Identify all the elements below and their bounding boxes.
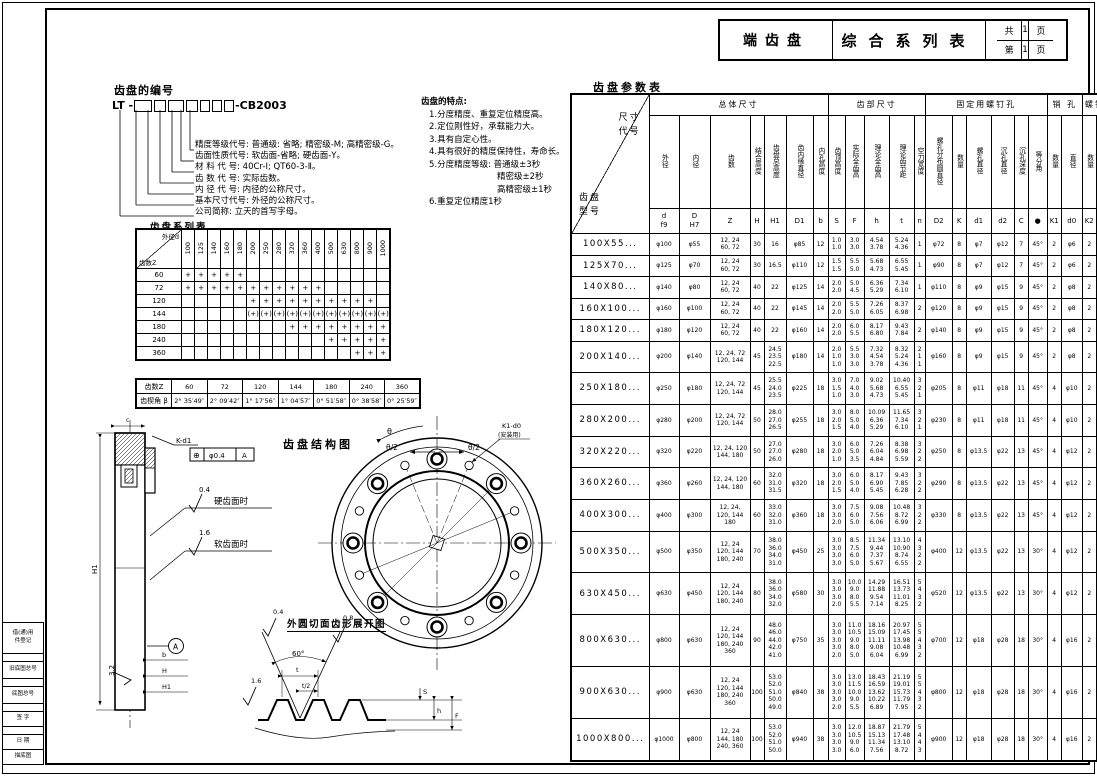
series-mark: + (325, 295, 338, 308)
param-value: φ120 (925, 298, 952, 320)
param-value: φ18 (966, 718, 991, 761)
param-value: φ330 (925, 500, 952, 532)
param-value: 48.0 46.0 44.0 42.0 41.0 (764, 615, 786, 667)
cross-section-view: H1 c K-d1 ⊕ φ0.4 A 0.4 硬齿面时 1.6 软齿 (91, 417, 272, 728)
series-col-header: 900 (364, 229, 377, 269)
param-value: 7.26 6.04 4.84 (864, 436, 889, 468)
angle-z-value: 144 (278, 379, 314, 394)
param-value: 2.0 2.0 (828, 298, 845, 320)
param-value: φ16 (1061, 718, 1082, 761)
param-value: 2.0 2.0 (828, 320, 845, 342)
param-symbol: d1 (966, 209, 991, 234)
series-col-value: 100 (184, 242, 192, 254)
param-value: 8 (952, 341, 966, 373)
param-value: 12, 24 60, 72 (710, 255, 750, 277)
k-d1-label: K-d1 (176, 437, 191, 445)
series-col-value: 360 (301, 242, 309, 254)
param-value: φ300 (679, 500, 710, 532)
series-z-label: 360 (136, 347, 182, 361)
margin-field-strip: 借(通)用 件登记旧底图总号底图总号签 字日 期描底图 (2, 622, 44, 765)
param-value: 13 (1014, 573, 1028, 615)
param-value: 30° (1028, 667, 1047, 719)
param-value: 1 (914, 255, 925, 277)
param-value: 12 (952, 573, 966, 615)
param-value: 21.79 17.48 13.10 8.72 (889, 718, 914, 761)
title-block: 端齿盘 综合系列表 共 1 页 第 1 页 (718, 19, 1068, 61)
param-data-row: 630X450...φ630φ45012, 24 120, 144 180, 2… (571, 573, 1097, 615)
param-value: 2 (1082, 255, 1096, 277)
margin-field: 描底图 (2, 750, 44, 765)
series-col-value: 180 (236, 242, 244, 254)
series-col-value: 1000 (379, 240, 387, 257)
param-value: 3.0 2.0 1.5 (828, 405, 845, 437)
param-value: 4 (1047, 718, 1061, 761)
param-symbol: H (750, 209, 764, 234)
margin-field (2, 704, 44, 712)
dim-b: b (162, 651, 166, 659)
series-mark: + (351, 321, 364, 334)
series-mark: + (286, 295, 299, 308)
param-value: φ145 (786, 298, 813, 320)
param-col-label: 空刀宽度 (914, 116, 925, 209)
theta-half-right: θ/2 (468, 443, 480, 452)
series-mark: + (312, 282, 325, 295)
param-value: φ12 (1061, 436, 1082, 468)
param-value: 30° (1028, 531, 1047, 573)
param-col-label: 齿盘总高度 (764, 116, 786, 209)
param-value: 1.5 1.5 (828, 255, 845, 277)
param-col-label: 螺孔分布圆直径 (925, 116, 952, 209)
angle-z-value: 72 (207, 379, 243, 394)
param-value: φ90 (925, 255, 952, 277)
param-value: φ140 (649, 277, 679, 299)
series-mark: + (286, 282, 299, 295)
param-value: φ900 (649, 667, 679, 719)
param-value: φ125 (649, 255, 679, 277)
param-value: φ900 (925, 718, 952, 761)
param-symbol: d f9 (649, 209, 679, 234)
param-model: 125X70... (571, 255, 649, 277)
roughness-04-dev: 0.4 (273, 608, 283, 616)
param-model: 400X300... (571, 500, 649, 532)
param-value: φ55 (679, 234, 710, 256)
series-mark: + (377, 321, 390, 334)
series-mark: (+) (247, 308, 260, 321)
param-value: 30° (1028, 615, 1047, 667)
param-value: 5.0 4.5 (845, 277, 864, 299)
param-value: φ750 (786, 615, 813, 667)
param-value: φ13.5 (966, 468, 991, 500)
series-mark: (+) (273, 308, 286, 321)
series-col-value: 800 (353, 242, 361, 254)
param-group-header: 总体尺寸 (649, 94, 828, 116)
param-value: 30° (1028, 718, 1047, 761)
param-value: φ80 (679, 277, 710, 299)
param-value: φ16 (1061, 667, 1082, 719)
param-value: 8.5 7.5 6.0 5.0 (845, 531, 864, 573)
param-value: φ220 (679, 436, 710, 468)
param-col-label: 沉孔直径 (991, 116, 1014, 209)
param-value: 3.0 2.0 1.0 (828, 436, 845, 468)
param-value: φ22 (991, 468, 1014, 500)
param-value: 16.51 13.73 11.01 8.25 (889, 573, 914, 615)
param-value: 2 (1082, 320, 1096, 342)
param-value: φ28 (991, 667, 1014, 719)
param-value: 100 (750, 667, 764, 719)
series-mark (234, 334, 247, 347)
series-mark (221, 334, 234, 347)
theta-label: θ (387, 427, 392, 436)
structure-diagrams: H1 c K-d1 ⊕ φ0.4 A 0.4 硬齿面时 1.6 软齿 (90, 408, 582, 756)
param-value: 4 (1047, 436, 1061, 468)
param-value: 6.0 5.0 3.5 (845, 436, 864, 468)
series-mark (286, 334, 299, 347)
param-value: 3 2 2 (914, 436, 925, 468)
param-value: 18 (813, 373, 828, 405)
param-value: 18.43 16.59 13.62 10.22 6.89 (864, 667, 889, 719)
param-value: 9.43 7.85 6.28 (889, 468, 914, 500)
series-col-header: 320 (286, 229, 299, 269)
series-mark (221, 347, 234, 361)
param-symbol-row: d f9D H7ZHH1D1bSFhtnD2Kd1d2C●K1d0K2d3 (571, 209, 1097, 234)
param-data-row: 1000X800...φ1000φ80012, 24 144, 180 240,… (571, 718, 1097, 761)
param-label-row: 外径内径齿数结合高度齿盘总高度齿内缘直径内孔高度齿顶高度实际全齿高理论全齿高理论… (571, 116, 1097, 209)
series-mark (234, 321, 247, 334)
series-row: 72+++++++++++ (136, 282, 390, 295)
param-corner-bottom: 齿盘 型号 (579, 191, 601, 219)
param-value: φ7 (966, 234, 991, 256)
param-value: 2 (1082, 234, 1096, 256)
param-value: φ250 (649, 373, 679, 405)
param-value: 4 (1047, 500, 1061, 532)
series-col-header: 630 (338, 229, 351, 269)
param-value: 14 (813, 298, 828, 320)
param-value: 8.17 6.80 (864, 320, 889, 342)
param-value: φ6 (1061, 234, 1082, 256)
series-mark: + (273, 295, 286, 308)
param-value: φ160 (786, 320, 813, 342)
param-data-row: 900X630...φ900φ63012, 24 120, 144 180, 2… (571, 667, 1097, 719)
angle-row: 齿数Z6072120144180240360 (136, 379, 420, 394)
param-value: 4 (1047, 667, 1061, 719)
param-value: 4 (1047, 468, 1061, 500)
hard-face-label: 硬齿面时 (214, 496, 249, 507)
param-value: 45° (1028, 436, 1047, 468)
param-value: φ160 (925, 341, 952, 373)
param-value: 12, 24, 120, 144 180 (710, 500, 750, 532)
param-model: 160X100... (571, 298, 649, 320)
param-value: 12, 24 60, 72 (710, 277, 750, 299)
series-corner: 外径d齿数Z (136, 229, 182, 269)
param-value: φ8 (1061, 320, 1082, 342)
param-data-row: 320X220...φ320φ22012, 24, 120 144, 18050… (571, 436, 1097, 468)
series-mark (377, 269, 390, 282)
param-value: φ500 (649, 531, 679, 573)
drawing-sheet: 端齿盘 综合系列表 共 1 页 第 1 页 齿盘的编号 LT - -CB2003 (0, 0, 1097, 776)
series-mark: + (364, 334, 377, 347)
param-value: 53.0 52.0 51.0 50.0 49.0 (764, 667, 786, 719)
series-mark (377, 295, 390, 308)
series-mark: + (351, 334, 364, 347)
param-col-label-text: 齿盘总高度 (772, 144, 779, 178)
series-mark (221, 295, 234, 308)
series-mark (273, 321, 286, 334)
param-value: 2.0 1.0 1.0 (828, 341, 845, 373)
param-data-row: 180X120...φ180φ12012, 24 60, 724022φ1601… (571, 320, 1097, 342)
param-value: 2.0 2.0 (828, 277, 845, 299)
series-z-label: 72 (136, 282, 182, 295)
page-number-row: 第 1 页 (997, 41, 1053, 60)
param-value: 18.16 15.09 11.11 9.08 6.04 (864, 615, 889, 667)
datum-A: A (173, 643, 179, 652)
series-mark: (+) (364, 308, 377, 321)
param-value: 8 (952, 298, 966, 320)
param-col-label-text: 直径 (1068, 154, 1075, 168)
param-value: 10.0 9.0 8.0 5.5 (845, 573, 864, 615)
param-value: 12 (952, 718, 966, 761)
param-value: 2 (1082, 373, 1096, 405)
page-number: 1 (1022, 41, 1029, 60)
param-value: 12, 24 120, 144 180, 240 (710, 531, 750, 573)
param-value: φ630 (679, 615, 710, 667)
series-col-value: 400 (314, 242, 322, 254)
roughness-08-dev: 0.8 (343, 614, 353, 622)
series-col-value: 320 (288, 242, 296, 254)
param-model: 280X200... (571, 405, 649, 437)
series-mark: (+) (286, 308, 299, 321)
param-value: 18 (813, 468, 828, 500)
param-value: φ260 (679, 468, 710, 500)
param-value: 80 (750, 573, 764, 615)
numbering-heading: 齿盘的编号 (114, 82, 174, 98)
param-value: 10.40 6.55 5.45 (889, 373, 914, 405)
series-mark (260, 334, 273, 347)
series-mark: + (377, 334, 390, 347)
param-value: φ280 (649, 405, 679, 437)
param-value: φ200 (649, 341, 679, 373)
param-col-label-text: 外径 (661, 154, 668, 168)
param-value: φ7 (966, 255, 991, 277)
total-pages-row: 共 1 页 (997, 21, 1053, 41)
series-mark: + (299, 282, 312, 295)
param-value: φ400 (925, 531, 952, 573)
param-value: 50 (750, 405, 764, 437)
param-symbol: D1 (786, 209, 813, 234)
total-label: 共 (997, 21, 1022, 40)
feature-line: 1.分度精度、重复定位精度高。 (421, 109, 591, 122)
series-mark: + (325, 334, 338, 347)
param-value: 60 (750, 468, 764, 500)
param-value: φ12 (1061, 468, 1082, 500)
param-value: φ140 (925, 320, 952, 342)
param-value: φ940 (786, 718, 813, 761)
series-mark: + (351, 347, 364, 361)
series-mark: + (208, 269, 221, 282)
param-value: 18 (813, 500, 828, 532)
param-value: φ13.5 (966, 500, 991, 532)
param-value: φ630 (649, 573, 679, 615)
param-model: 180X120... (571, 320, 649, 342)
param-value: 3.0 3.0 3.0 3.0 (828, 718, 845, 761)
param-value: 4 (1047, 573, 1061, 615)
tolerance-symbol: ⊕ (193, 451, 200, 460)
param-value: 4.54 3.78 (864, 234, 889, 256)
param-value: 70 (750, 531, 764, 573)
series-mark: + (312, 295, 325, 308)
series-mark (260, 321, 273, 334)
soft-face-label: 软齿面时 (214, 539, 249, 550)
param-value: 3.0 3.0 3.0 3.0 2.0 (828, 667, 845, 719)
param-value: 21.19 19.01 15.73 11.79 7.95 (889, 667, 914, 719)
param-symbol: d0 (1061, 209, 1082, 234)
series-mark: + (325, 321, 338, 334)
param-value: φ72 (925, 234, 952, 256)
angle-beta-value: 1° 04′57″ (278, 394, 314, 409)
series-mark (364, 269, 377, 282)
param-value: 13 (1014, 436, 1028, 468)
param-value: φ12 (991, 255, 1014, 277)
param-value: 8.38 6.98 5.59 (889, 436, 914, 468)
series-mark (325, 282, 338, 295)
param-value: 45 (750, 341, 764, 373)
param-value: 12 (952, 667, 966, 719)
series-mark (377, 282, 390, 295)
param-value: 38.0 36.0 34.0 32.0 (764, 573, 786, 615)
series-col-header: 1000 (377, 229, 390, 269)
param-value: φ400 (649, 500, 679, 532)
param-value: 33.0 32.0 31.0 (764, 500, 786, 532)
param-value: 9.08 7.56 6.06 (864, 500, 889, 532)
param-col-label-text: 理论全齿高 (873, 144, 880, 178)
dim-H1: H1 (162, 683, 171, 691)
param-data-row: 200X140...φ200φ14012, 24, 72 120, 144452… (571, 341, 1097, 373)
param-value: 9 (1014, 298, 1028, 320)
param-value: 2 (1047, 255, 1061, 277)
series-mark: + (364, 347, 377, 361)
param-col-label-text: 内径 (691, 154, 698, 168)
tolerance-value: φ0.4 (209, 452, 225, 460)
front-view: θ θ/2 θ/2 K1-d0 (安装用) (318, 416, 556, 670)
param-value: φ70 (679, 255, 710, 277)
param-value: 45° (1028, 298, 1047, 320)
param-value: φ12 (1061, 573, 1082, 615)
param-value: 8 (952, 320, 966, 342)
param-value: φ9 (966, 320, 991, 342)
param-value: 2 (1082, 667, 1096, 719)
series-col-value: 140 (210, 242, 218, 254)
param-value: 1.0 1.0 (828, 234, 845, 256)
angle-z-label: 齿数Z (136, 379, 172, 394)
series-mark: + (247, 295, 260, 308)
series-mark (208, 308, 221, 321)
angle-60-label: 60° (292, 650, 304, 658)
param-value: 30° (1028, 573, 1047, 615)
param-value: 45° (1028, 341, 1047, 373)
param-value: φ180 (679, 373, 710, 405)
param-value: φ85 (786, 234, 813, 256)
param-value: 7.26 6.05 (864, 298, 889, 320)
param-value: 8 (952, 255, 966, 277)
angle-beta-value: 0° 51′58″ (314, 394, 350, 409)
param-model: 200X140... (571, 341, 649, 373)
param-data-row: 140X80...φ140φ8012, 24 60, 724022φ125142… (571, 277, 1097, 299)
param-value: 18 (813, 405, 828, 437)
sheet-title: 综合系列表 (833, 21, 986, 59)
margin-field: 旧底图总号 (2, 662, 44, 679)
param-col-label: 数量 (1047, 116, 1061, 209)
param-data-row: 100X55...φ100φ5512, 24 60, 723016φ85121.… (571, 234, 1097, 256)
param-value: 13 (1014, 500, 1028, 532)
param-value: φ140 (679, 341, 710, 373)
param-value: φ12 (1061, 531, 1082, 573)
param-value: 5 5 4 3 2 (914, 615, 925, 667)
series-mark (364, 282, 377, 295)
param-value: 18 (1014, 718, 1028, 761)
series-mark: (+) (377, 308, 390, 321)
param-value: φ630 (679, 667, 710, 719)
series-mark: (+) (338, 308, 351, 321)
legend-line: 公司简称: 立天的首写字母。 (195, 207, 525, 218)
param-corner-top: 尺寸 代号 (618, 111, 640, 139)
param-value: 60 (750, 500, 764, 532)
param-value: 7 (1014, 255, 1028, 277)
series-col-header: 180 (234, 229, 247, 269)
param-value: φ180 (786, 341, 813, 373)
series-z-label: 144 (136, 308, 182, 321)
param-data-row: 280X200...φ280φ20012, 24, 72 120, 144502… (571, 405, 1097, 437)
param-value: 45° (1028, 234, 1047, 256)
feature-line: 3.具有自定心性。 (421, 134, 591, 147)
param-model: 630X450... (571, 573, 649, 615)
series-mark (273, 269, 286, 282)
param-value: 40 (750, 277, 764, 299)
param-value: 18 (1014, 615, 1028, 667)
param-value: φ120 (679, 320, 710, 342)
dim-H: H (162, 667, 167, 675)
param-value: 13 (1014, 531, 1028, 573)
param-model: 500X350... (571, 531, 649, 573)
param-value: 25.5 24.0 23.5 (764, 373, 786, 405)
param-data-row: 400X300...φ400φ30012, 24, 120, 144 18060… (571, 500, 1097, 532)
series-mark (247, 347, 260, 361)
param-value: 9 (1014, 341, 1028, 373)
param-value: φ110 (925, 277, 952, 299)
param-value: 11.65 7.34 6.10 (889, 405, 914, 437)
page-unit2: 页 (1029, 41, 1053, 60)
param-col-label: 齿顶高度 (828, 116, 845, 209)
angle-z-value: 180 (314, 379, 350, 394)
param-value: 6.0 5.5 (845, 320, 864, 342)
feature-line: 齿盘的特点: (421, 96, 591, 109)
param-value: φ15 (991, 341, 1014, 373)
param-value: φ18 (991, 405, 1014, 437)
param-col-label: 沉孔深度 (1014, 116, 1028, 209)
param-symbol: F (845, 209, 864, 234)
param-value: φ28 (991, 718, 1014, 761)
series-mark: + (260, 295, 273, 308)
param-value: 38 (813, 667, 828, 719)
param-model: 140X80... (571, 277, 649, 299)
param-group-header: 固定用螺钉孔 (925, 94, 1047, 116)
param-value: 11.0 10.5 9.0 8.0 5.0 (845, 615, 864, 667)
param-col-label-text: 实际全齿高 (851, 144, 858, 178)
series-table: 外径d齿数Z1001251401601802002502803203604005… (135, 228, 391, 361)
param-value: 8.0 5.0 4.0 (845, 405, 864, 437)
param-col-label: 直径 (1061, 116, 1082, 209)
param-data-row: 800X630...φ800φ63012, 24 120, 144 180, 2… (571, 615, 1097, 667)
k1-d0-label: K1-d0 (502, 422, 521, 430)
param-value: φ280 (786, 436, 813, 468)
